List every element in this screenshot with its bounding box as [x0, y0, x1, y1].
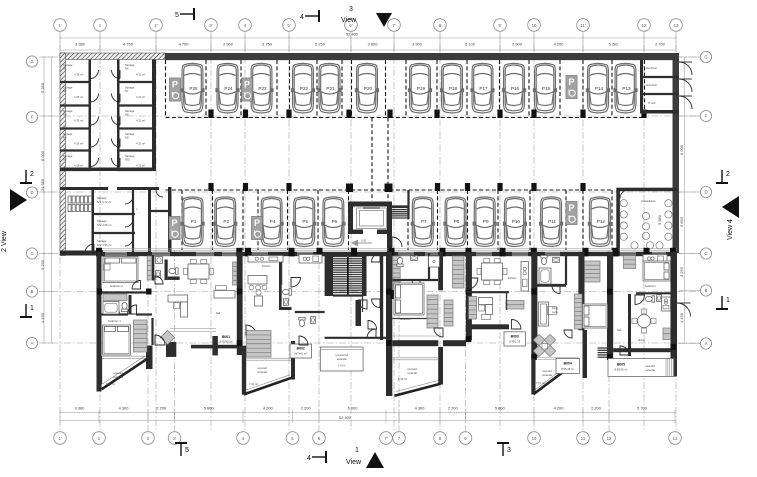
svg-text:52 400: 52 400 [339, 415, 352, 420]
svg-text:2 200: 2 200 [301, 406, 312, 411]
svg-text:2: 2 [726, 171, 730, 178]
svg-text:7.57 m²: 7.57 m² [536, 381, 545, 385]
svg-text:bedroom: bedroom [645, 284, 656, 288]
svg-text:1': 1' [58, 23, 61, 28]
svg-text:6 000: 6 000 [348, 406, 359, 411]
svg-text:N4: N4 [63, 136, 67, 140]
svg-text:P5: P5 [302, 219, 308, 224]
svg-text:6.36 m²: 6.36 m² [398, 377, 407, 381]
svg-text:A: A [705, 341, 708, 346]
svg-text:4.31 m²: 4.31 m² [136, 73, 145, 77]
svg-text:Storage: Storage [63, 154, 73, 158]
svg-text:1: 1 [30, 305, 34, 312]
svg-text:Storage: Storage [125, 132, 135, 136]
svg-text:4 200: 4 200 [263, 406, 274, 411]
svg-text:C: C [704, 251, 707, 256]
svg-text:P8: P8 [454, 219, 460, 224]
svg-text:C: C [30, 251, 33, 256]
svg-text:P11: P11 [548, 219, 556, 224]
svg-text:4.35 m²: 4.35 m² [74, 95, 83, 99]
svg-text:B004: B004 [564, 361, 572, 365]
svg-text:4.35 m²: 4.35 m² [74, 164, 83, 168]
svg-text:kitchen: kitchen [262, 264, 271, 268]
svg-text:5': 5' [287, 23, 290, 28]
svg-text:N1: N1 [63, 67, 67, 71]
svg-text:2 200: 2 200 [591, 406, 602, 411]
svg-text:8:58.95 m²: 8:58.95 m² [615, 368, 628, 372]
svg-text:Storage: Storage [125, 109, 135, 113]
svg-text:3 380: 3 380 [75, 42, 86, 47]
svg-text:bedroom 2: bedroom 2 [110, 284, 123, 288]
svg-text:7.34 m²: 7.34 m² [249, 382, 258, 386]
svg-text:B005: B005 [617, 363, 625, 367]
svg-text:5 800: 5 800 [495, 406, 506, 411]
svg-text:P22: P22 [300, 86, 309, 91]
svg-text:11': 11' [580, 23, 585, 28]
svg-text:veranda: veranda [645, 368, 655, 372]
svg-text:Storage: Storage [97, 219, 107, 223]
svg-text:4 700: 4 700 [179, 42, 190, 47]
svg-text:1': 1' [58, 436, 61, 441]
svg-text:Storage: Storage [125, 154, 135, 158]
svg-text:Storage: Storage [63, 86, 73, 90]
svg-text:4: 4 [307, 455, 311, 462]
svg-text:5 380: 5 380 [657, 214, 662, 225]
svg-text:3 250: 3 250 [679, 266, 684, 277]
svg-text:P24: P24 [224, 86, 233, 91]
svg-text:52 400: 52 400 [346, 32, 359, 37]
svg-text:6 000: 6 000 [40, 150, 45, 161]
svg-text:F: F [705, 114, 708, 119]
svg-text:P15: P15 [542, 86, 551, 91]
svg-text:veranda: veranda [113, 375, 123, 379]
svg-text:Storage: Storage [125, 63, 135, 67]
svg-text:7': 7' [384, 436, 387, 441]
svg-text:subwellness: subwellness [641, 199, 656, 203]
svg-text:P25: P25 [189, 86, 198, 91]
svg-text:8x7x41 m²: 8x7x41 m² [294, 352, 307, 356]
svg-text:2 200: 2 200 [448, 406, 459, 411]
svg-text:10: 10 [532, 23, 537, 28]
svg-text:Storage: Storage [97, 239, 107, 243]
svg-text:P19: P19 [417, 86, 426, 91]
svg-text:4 300: 4 300 [119, 406, 130, 411]
svg-text:5: 5 [185, 447, 189, 454]
svg-text:P20: P20 [364, 86, 373, 91]
svg-text:3 900: 3 900 [412, 42, 423, 47]
svg-text:P1: P1 [191, 219, 197, 224]
svg-text:N5: N5 [63, 158, 67, 162]
svg-text:5 250: 5 250 [315, 42, 326, 47]
svg-text:P17: P17 [479, 86, 488, 91]
svg-text:P6: P6 [332, 219, 338, 224]
svg-text:2 View: 2 View [1, 230, 8, 252]
svg-text:10: 10 [532, 436, 537, 441]
svg-text:F: F [31, 115, 34, 120]
svg-text:5 280: 5 280 [40, 82, 45, 93]
svg-text:5 650: 5 650 [679, 216, 684, 227]
svg-text:dining: dining [638, 338, 646, 342]
svg-text:hall: hall [216, 311, 221, 315]
svg-text:technical: technical [646, 83, 657, 87]
svg-text:12: 12 [642, 23, 647, 28]
svg-text:B: B [31, 289, 34, 294]
svg-text:Storage: Storage [97, 196, 107, 200]
svg-text:P4: P4 [270, 219, 276, 224]
svg-text:bedroom: bedroom [400, 317, 411, 321]
svg-text:Storage: Storage [63, 63, 73, 67]
svg-text:4.31 m²: 4.31 m² [136, 164, 145, 168]
svg-text:N10: N10 [125, 158, 130, 162]
svg-text:View 4: View 4 [727, 219, 734, 240]
svg-text:4 200: 4 200 [554, 42, 565, 47]
svg-text:B: B [705, 288, 708, 293]
svg-text:4.35 m²: 4.35 m² [74, 73, 83, 77]
svg-text:0.00: 0.00 [361, 239, 367, 243]
svg-text:View: View [346, 459, 362, 466]
svg-text:2 900: 2 900 [512, 42, 523, 47]
svg-text:N9: N9 [125, 136, 129, 140]
svg-text:4.31 m²: 4.31 m² [136, 95, 145, 99]
svg-text:P18: P18 [449, 86, 458, 91]
svg-text:N6: N6 [125, 67, 129, 71]
svg-text:covered: covered [542, 369, 552, 373]
svg-text:2 960: 2 960 [223, 42, 234, 47]
svg-text:B002: B002 [297, 347, 305, 351]
svg-text:A: A [31, 341, 34, 346]
svg-text:veranda: veranda [542, 373, 552, 377]
svg-text:3 600: 3 600 [368, 42, 379, 47]
svg-text:N°1 4.72 m²: N°1 4.72 m² [97, 200, 111, 204]
svg-text:veranda: veranda [257, 370, 267, 374]
svg-text:P12: P12 [597, 219, 606, 224]
svg-text:N°2 4.55 m²: N°2 4.55 m² [97, 223, 111, 227]
svg-text:1: 1 [726, 297, 730, 304]
svg-text:4: 4 [300, 14, 304, 21]
svg-text:3 380: 3 380 [75, 406, 86, 411]
svg-text:4.35 m²: 4.35 m² [74, 142, 83, 146]
svg-text:13: 13 [674, 23, 679, 28]
svg-text:Storage: Storage [125, 86, 135, 90]
svg-text:3: 3 [507, 447, 511, 454]
svg-text:7.9 m²: 7.9 m² [338, 364, 346, 368]
svg-text:11: 11 [581, 436, 586, 441]
svg-text:P16: P16 [511, 86, 520, 91]
svg-text:5 200: 5 200 [609, 42, 620, 47]
svg-text:5 800: 5 800 [204, 406, 215, 411]
svg-text:P13: P13 [622, 86, 631, 91]
svg-text:veranda: veranda [337, 357, 347, 361]
svg-text:D: D [30, 190, 33, 195]
svg-text:covered: covered [407, 367, 417, 371]
svg-text:4.31 m²: 4.31 m² [136, 119, 145, 123]
svg-text:room: room [552, 310, 559, 314]
svg-text:8:58.46 m²: 8:58.46 m² [561, 367, 574, 371]
svg-text:4 450: 4 450 [40, 312, 45, 323]
svg-text:5 100: 5 100 [465, 42, 476, 47]
svg-text:N°3 4.55 m²: N°3 4.55 m² [97, 243, 111, 247]
svg-text:6 000: 6 000 [679, 144, 684, 155]
svg-text:View: View [341, 17, 357, 24]
svg-text:Storage: Storage [63, 109, 73, 113]
svg-text:N8: N8 [125, 113, 129, 117]
svg-text:living: living [552, 306, 559, 310]
svg-text:3 750: 3 750 [262, 42, 273, 47]
svg-text:hall: hall [617, 328, 622, 332]
svg-text:bedroom 1: bedroom 1 [108, 319, 121, 323]
svg-text:4 360: 4 360 [415, 406, 426, 411]
svg-text:Storage: Storage [63, 132, 73, 136]
svg-text:B001: B001 [222, 335, 230, 339]
svg-text:4.35 m²: 4.35 m² [74, 119, 83, 123]
svg-text:P2: P2 [223, 219, 229, 224]
svg-text:electrical: electrical [646, 66, 657, 70]
svg-text:4 200: 4 200 [554, 406, 565, 411]
svg-text:covered: covered [645, 364, 655, 368]
svg-text:4.31 m²: 4.31 m² [136, 142, 145, 146]
svg-text:2 200: 2 200 [156, 406, 167, 411]
svg-text:9': 9' [498, 23, 501, 28]
svg-text:P10: P10 [512, 219, 521, 224]
svg-text:veranda: veranda [407, 371, 417, 375]
svg-text:N3: N3 [63, 113, 67, 117]
svg-text:5: 5 [175, 12, 179, 19]
svg-text:3': 3' [209, 23, 212, 28]
svg-text:P23: P23 [258, 86, 267, 91]
svg-text:4 750: 4 750 [123, 42, 134, 47]
svg-text:13: 13 [673, 436, 678, 441]
svg-text:B003: B003 [511, 334, 519, 338]
svg-text:5.35 m²: 5.35 m² [106, 382, 115, 386]
svg-text:N7: N7 [125, 89, 129, 93]
svg-text:7': 7' [392, 23, 395, 28]
svg-text:1: 1 [355, 447, 359, 454]
svg-text:3 250: 3 250 [40, 259, 45, 270]
svg-text:P21: P21 [326, 86, 335, 91]
svg-text:covered: covered [257, 366, 267, 370]
svg-text:9.45/95 m²: 9.45/95 m² [220, 340, 233, 344]
svg-text:2': 2' [154, 23, 157, 28]
svg-text:kitchen: kitchen [508, 276, 517, 280]
svg-text:2: 2 [30, 171, 34, 178]
svg-text:uncovered: uncovered [335, 353, 348, 357]
svg-text:12: 12 [607, 436, 612, 441]
svg-text:P7: P7 [421, 219, 427, 224]
svg-text:D: D [704, 190, 707, 195]
svg-text:P14: P14 [595, 86, 604, 91]
svg-text:5 700: 5 700 [637, 406, 648, 411]
svg-text:N2: N2 [63, 89, 67, 93]
svg-text:3: 3 [349, 6, 353, 13]
svg-text:8.45/1.35: 8.45/1.35 [509, 340, 521, 344]
svg-text:P9: P9 [483, 219, 489, 224]
svg-text:4 450: 4 450 [679, 312, 684, 323]
svg-text:24 580: 24 580 [40, 178, 45, 191]
svg-text:covered: covered [113, 371, 123, 375]
svg-text:IT unit: IT unit [648, 101, 656, 105]
svg-text:2 700: 2 700 [655, 42, 666, 47]
